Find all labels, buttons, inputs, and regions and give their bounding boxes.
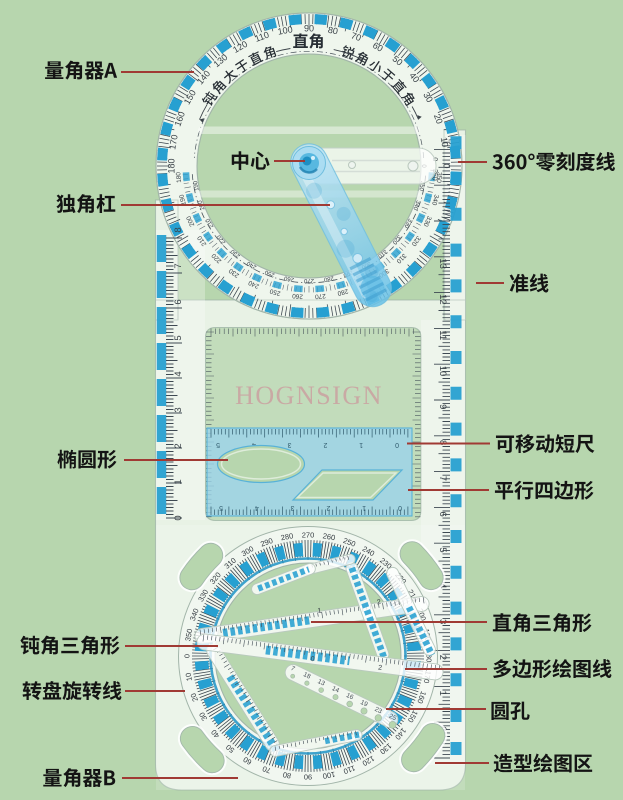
svg-text:0: 0 <box>395 441 399 448</box>
svg-text:80: 80 <box>282 770 292 780</box>
svg-text:270: 270 <box>302 530 315 539</box>
svg-text:11: 11 <box>437 330 448 340</box>
svg-text:13: 13 <box>437 258 448 269</box>
svg-text:12: 12 <box>437 294 448 305</box>
svg-text:2: 2 <box>173 443 184 448</box>
svg-text:2: 2 <box>326 504 330 511</box>
svg-text:1: 1 <box>437 691 448 696</box>
svg-text:270: 270 <box>314 292 326 300</box>
svg-text:1: 1 <box>359 441 363 448</box>
svg-text:3: 3 <box>288 441 292 448</box>
svg-text:90: 90 <box>304 23 314 33</box>
svg-text:260: 260 <box>292 292 304 300</box>
svg-text:5: 5 <box>216 441 220 448</box>
svg-text:5: 5 <box>437 547 448 552</box>
svg-text:2: 2 <box>323 441 327 448</box>
svg-text:HOGNSIGN: HOGNSIGN <box>235 381 383 410</box>
svg-text:6: 6 <box>173 299 184 304</box>
svg-text:180: 180 <box>166 158 176 173</box>
svg-text:6: 6 <box>437 512 448 517</box>
svg-text:5: 5 <box>219 504 223 511</box>
svg-text:0: 0 <box>398 504 402 511</box>
svg-text:90: 90 <box>304 773 312 782</box>
svg-text:3: 3 <box>291 504 295 511</box>
svg-text:4: 4 <box>255 504 259 511</box>
svg-text:0: 0 <box>442 163 452 168</box>
svg-text:7: 7 <box>437 476 448 481</box>
svg-text:0: 0 <box>173 515 184 520</box>
svg-text:5: 5 <box>173 335 184 340</box>
svg-text:1: 1 <box>362 504 366 511</box>
svg-text:180: 180 <box>175 171 183 183</box>
svg-text:0: 0 <box>182 654 191 658</box>
svg-text:4: 4 <box>173 371 184 376</box>
svg-text:10: 10 <box>184 672 194 682</box>
svg-text:9: 9 <box>437 404 448 409</box>
svg-text:3: 3 <box>173 407 184 412</box>
svg-text:8: 8 <box>173 227 184 232</box>
svg-text:10: 10 <box>437 366 448 377</box>
svg-text:1: 1 <box>173 479 184 484</box>
svg-text:7: 7 <box>173 263 184 268</box>
svg-text:80: 80 <box>327 25 339 37</box>
svg-text:2: 2 <box>437 655 448 660</box>
